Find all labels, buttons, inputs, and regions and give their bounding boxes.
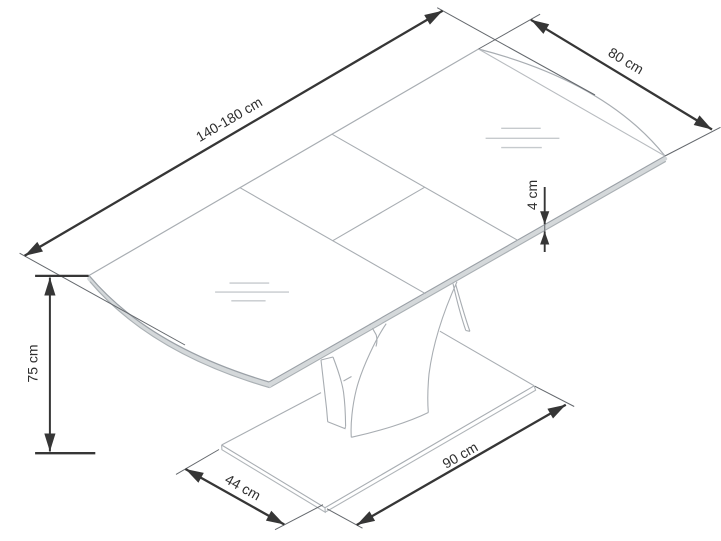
svg-text:75 cm: 75 cm [25, 344, 41, 382]
svg-text:4 cm: 4 cm [524, 180, 540, 210]
